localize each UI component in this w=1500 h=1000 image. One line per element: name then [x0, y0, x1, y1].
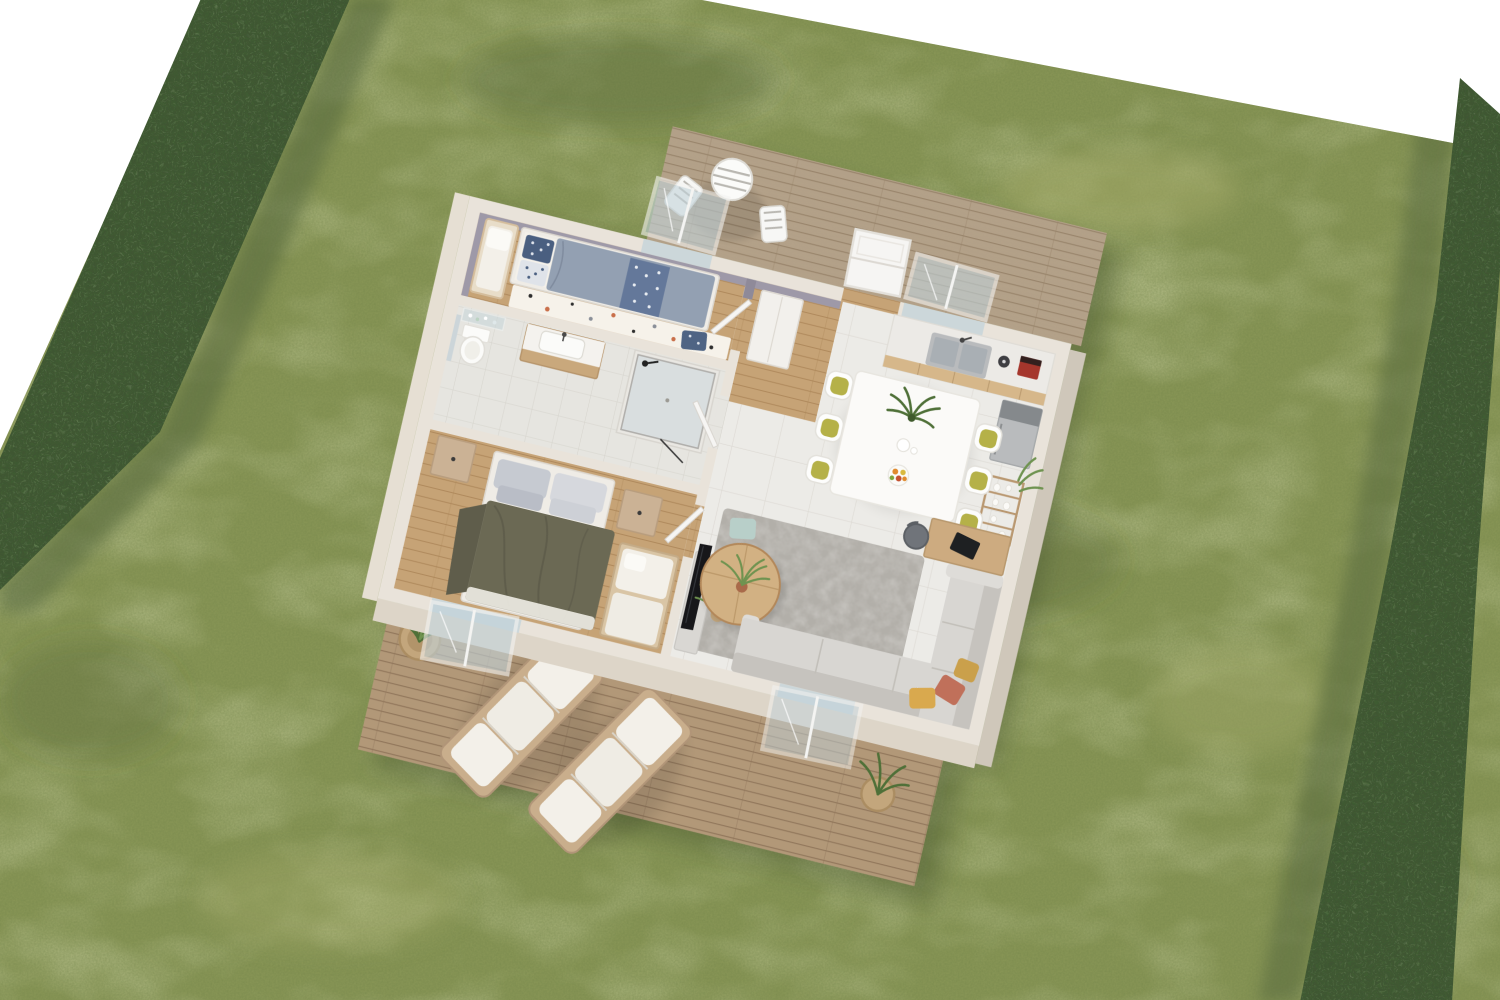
nightstand-left	[430, 435, 476, 483]
cushion-mustard	[909, 688, 935, 709]
nightstand-right	[616, 489, 662, 537]
bistro-chair-right	[759, 205, 787, 242]
floor-cushion-sage	[729, 517, 756, 539]
render-canvas	[0, 0, 1500, 1000]
front-door-panel	[845, 229, 911, 296]
scene-svg	[0, 0, 1500, 1000]
